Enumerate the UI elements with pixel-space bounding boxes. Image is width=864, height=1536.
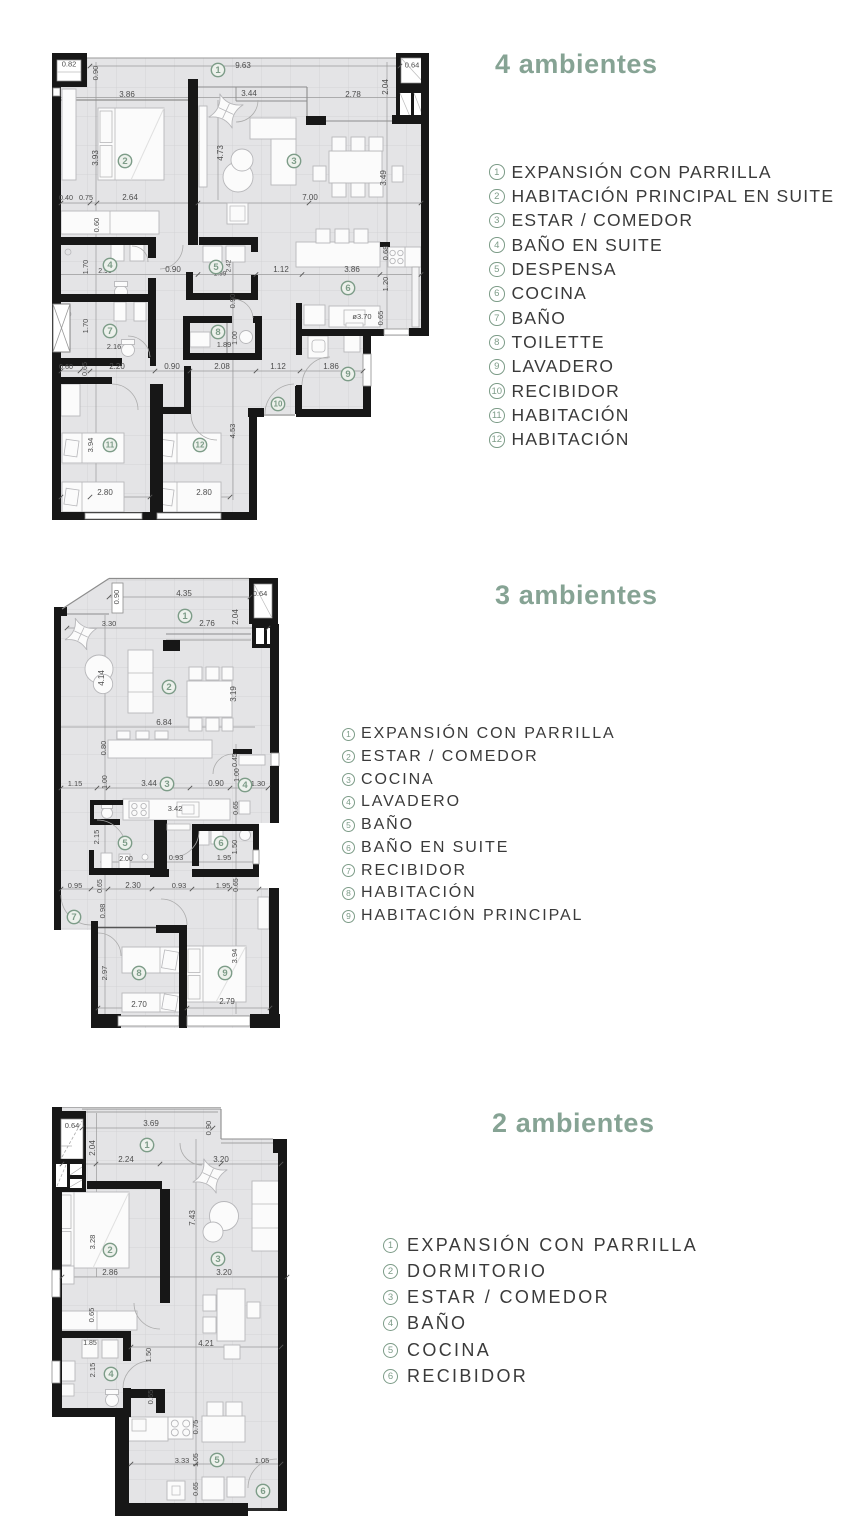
svg-text:2.78: 2.78 [345, 90, 361, 99]
svg-text:1.05: 1.05 [255, 1456, 270, 1465]
svg-text:4.14: 4.14 [97, 670, 106, 686]
svg-text:3: 3 [215, 1254, 220, 1265]
svg-text:1.15: 1.15 [68, 779, 83, 788]
svg-text:0.40: 0.40 [59, 193, 73, 202]
svg-text:2.00: 2.00 [119, 856, 133, 863]
svg-text:2.80: 2.80 [196, 488, 212, 497]
svg-text:1.05: 1.05 [193, 1453, 200, 1467]
svg-text:9: 9 [345, 369, 350, 380]
svg-text:1.50: 1.50 [230, 840, 239, 855]
svg-text:0.64: 0.64 [405, 60, 420, 69]
svg-text:7.00: 7.00 [302, 193, 318, 202]
svg-text:2.86: 2.86 [102, 1268, 118, 1277]
svg-text:4.53: 4.53 [228, 424, 237, 439]
svg-text:0.65: 0.65 [146, 1390, 155, 1405]
svg-text:3.30: 3.30 [102, 619, 117, 628]
svg-text:0.65: 0.65 [97, 879, 104, 893]
svg-text:2.42: 2.42 [226, 259, 233, 272]
svg-text:1.86: 1.86 [323, 362, 339, 371]
svg-text:1.30: 1.30 [251, 779, 266, 788]
svg-text:9.63: 9.63 [235, 61, 251, 70]
svg-text:0.65: 0.65 [376, 311, 385, 326]
svg-text:4.21: 4.21 [198, 1339, 214, 1348]
svg-text:0.75: 0.75 [79, 193, 93, 202]
svg-text:8: 8 [136, 968, 141, 979]
svg-text:1.50: 1.50 [144, 1348, 153, 1363]
svg-text:2.20: 2.20 [109, 362, 125, 371]
svg-text:0.95: 0.95 [68, 881, 83, 890]
svg-text:9: 9 [222, 968, 227, 979]
svg-text:0.90: 0.90 [204, 1121, 213, 1136]
svg-text:8: 8 [215, 327, 220, 338]
svg-text:12: 12 [196, 441, 205, 450]
svg-text:2.16: 2.16 [107, 342, 122, 351]
svg-text:10: 10 [274, 400, 283, 409]
svg-text:2.15: 2.15 [92, 830, 101, 845]
svg-text:0.80: 0.80 [99, 741, 108, 756]
svg-text:2.79: 2.79 [219, 997, 235, 1006]
svg-text:0.64: 0.64 [253, 589, 268, 598]
svg-text:0.65: 0.65 [87, 1308, 96, 1323]
svg-text:0.93: 0.93 [169, 853, 184, 862]
svg-text:3.28: 3.28 [88, 1235, 97, 1250]
svg-text:0.90: 0.90 [208, 779, 224, 788]
svg-text:0.68: 0.68 [381, 246, 390, 261]
svg-text:3.44: 3.44 [141, 779, 157, 788]
svg-text:4: 4 [107, 260, 113, 271]
svg-text:3.42: 3.42 [168, 804, 183, 813]
svg-text:0.98: 0.98 [98, 904, 107, 919]
svg-text:3.94: 3.94 [86, 438, 95, 453]
svg-text:1: 1 [144, 1140, 150, 1151]
svg-text:1.20: 1.20 [381, 277, 390, 292]
svg-text:2.97: 2.97 [100, 966, 109, 981]
svg-text:11: 11 [106, 441, 115, 450]
svg-text:0.65: 0.65 [80, 362, 89, 376]
svg-text:6: 6 [218, 838, 223, 849]
svg-text:1.12: 1.12 [273, 265, 289, 274]
svg-text:3.20: 3.20 [213, 1155, 229, 1164]
svg-text:2.04: 2.04 [88, 1140, 97, 1156]
svg-text:1.85: 1.85 [83, 1340, 97, 1347]
svg-text:1: 1 [215, 65, 221, 76]
svg-text:0.90: 0.90 [91, 66, 100, 81]
svg-text:3.20: 3.20 [216, 1268, 232, 1277]
svg-text:1.70: 1.70 [81, 260, 90, 275]
svg-text:0.82: 0.82 [62, 59, 77, 68]
svg-text:2.04: 2.04 [381, 79, 390, 95]
svg-text:7: 7 [107, 326, 112, 337]
svg-text:0.60: 0.60 [92, 218, 101, 233]
svg-text:2.04: 2.04 [231, 609, 240, 625]
svg-text:1.00: 1.00 [102, 775, 109, 789]
svg-text:0.75: 0.75 [191, 1420, 200, 1435]
svg-text:1.95: 1.95 [216, 881, 231, 890]
svg-text:2.70: 2.70 [131, 1000, 147, 1009]
svg-text:0.64: 0.64 [65, 1121, 80, 1130]
svg-text:4: 4 [108, 1369, 114, 1380]
svg-text:1.00: 1.00 [232, 331, 239, 345]
svg-text:5: 5 [213, 262, 219, 273]
svg-text:3: 3 [291, 156, 296, 167]
svg-text:2.64: 2.64 [122, 193, 138, 202]
svg-text:ø3.70: ø3.70 [352, 312, 371, 321]
svg-text:3.94: 3.94 [230, 949, 239, 964]
svg-text:2.30: 2.30 [125, 881, 141, 890]
svg-text:2: 2 [166, 682, 171, 693]
svg-text:6: 6 [260, 1486, 265, 1497]
svg-text:0.65: 0.65 [233, 801, 240, 815]
svg-text:3.93: 3.93 [91, 150, 100, 166]
svg-text:2: 2 [122, 156, 127, 167]
svg-text:7: 7 [71, 912, 76, 923]
svg-text:0.93: 0.93 [172, 881, 187, 890]
svg-text:1.70: 1.70 [81, 319, 90, 334]
svg-text:5: 5 [214, 1455, 220, 1466]
svg-text:0.90: 0.90 [165, 265, 181, 274]
svg-text:1.12: 1.12 [270, 362, 286, 371]
svg-text:1.95: 1.95 [217, 853, 232, 862]
svg-text:3.33: 3.33 [175, 1456, 190, 1465]
svg-text:4.35: 4.35 [176, 589, 192, 598]
svg-text:0.60: 0.60 [59, 362, 73, 371]
svg-text:1.89: 1.89 [217, 340, 232, 349]
svg-text:2.24: 2.24 [118, 1155, 134, 1164]
svg-text:1: 1 [182, 611, 188, 622]
svg-text:6: 6 [345, 283, 350, 294]
svg-text:3.19: 3.19 [229, 686, 238, 702]
svg-text:0.90: 0.90 [164, 362, 180, 371]
svg-text:5: 5 [122, 838, 128, 849]
svg-text:3.86: 3.86 [119, 90, 135, 99]
svg-text:0.65: 0.65 [233, 878, 240, 892]
svg-text:3.69: 3.69 [143, 1119, 159, 1128]
svg-text:7.43: 7.43 [188, 1210, 197, 1226]
svg-text:4.73: 4.73 [216, 145, 225, 161]
svg-text:3: 3 [164, 779, 169, 790]
svg-text:3.49: 3.49 [379, 170, 388, 186]
svg-text:2.80: 2.80 [97, 488, 113, 497]
svg-text:0.45: 0.45 [232, 753, 239, 767]
svg-text:4: 4 [242, 780, 248, 791]
svg-text:0.65: 0.65 [193, 1482, 200, 1496]
svg-text:2.08: 2.08 [214, 362, 230, 371]
svg-text:2: 2 [107, 1245, 112, 1256]
svg-text:3.86: 3.86 [344, 265, 360, 274]
svg-text:2.76: 2.76 [199, 619, 215, 628]
svg-text:2.15: 2.15 [88, 1363, 97, 1378]
svg-text:0.90: 0.90 [228, 294, 237, 309]
svg-text:6.84: 6.84 [156, 718, 172, 727]
svg-text:0.90: 0.90 [112, 590, 121, 605]
svg-text:3.44: 3.44 [241, 89, 257, 98]
